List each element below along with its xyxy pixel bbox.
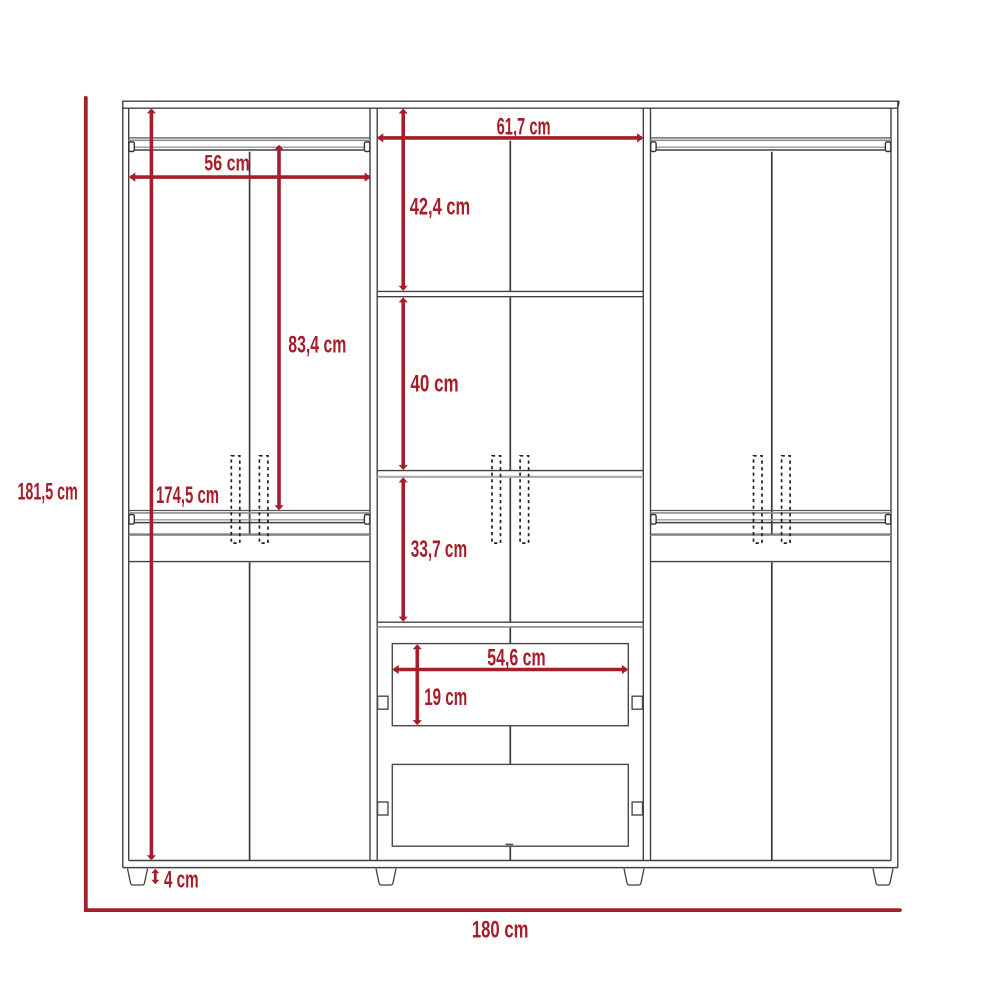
svg-text:54,6 cm: 54,6 cm [487,644,545,671]
svg-text:61,7 cm: 61,7 cm [497,113,551,140]
svg-text:174,5 cm: 174,5 cm [156,483,219,509]
svg-text:42,4 cm: 42,4 cm [410,194,471,221]
svg-text:83,4 cm: 83,4 cm [288,331,346,358]
svg-text:40 cm: 40 cm [410,371,458,398]
svg-text:33,7 cm: 33,7 cm [411,537,467,563]
svg-text:19 cm: 19 cm [424,684,467,711]
svg-text:180 cm: 180 cm [472,916,529,943]
svg-text:4 cm: 4 cm [164,867,199,894]
svg-text:56 cm: 56 cm [204,151,250,176]
svg-text:181,5 cm: 181,5 cm [18,479,78,506]
